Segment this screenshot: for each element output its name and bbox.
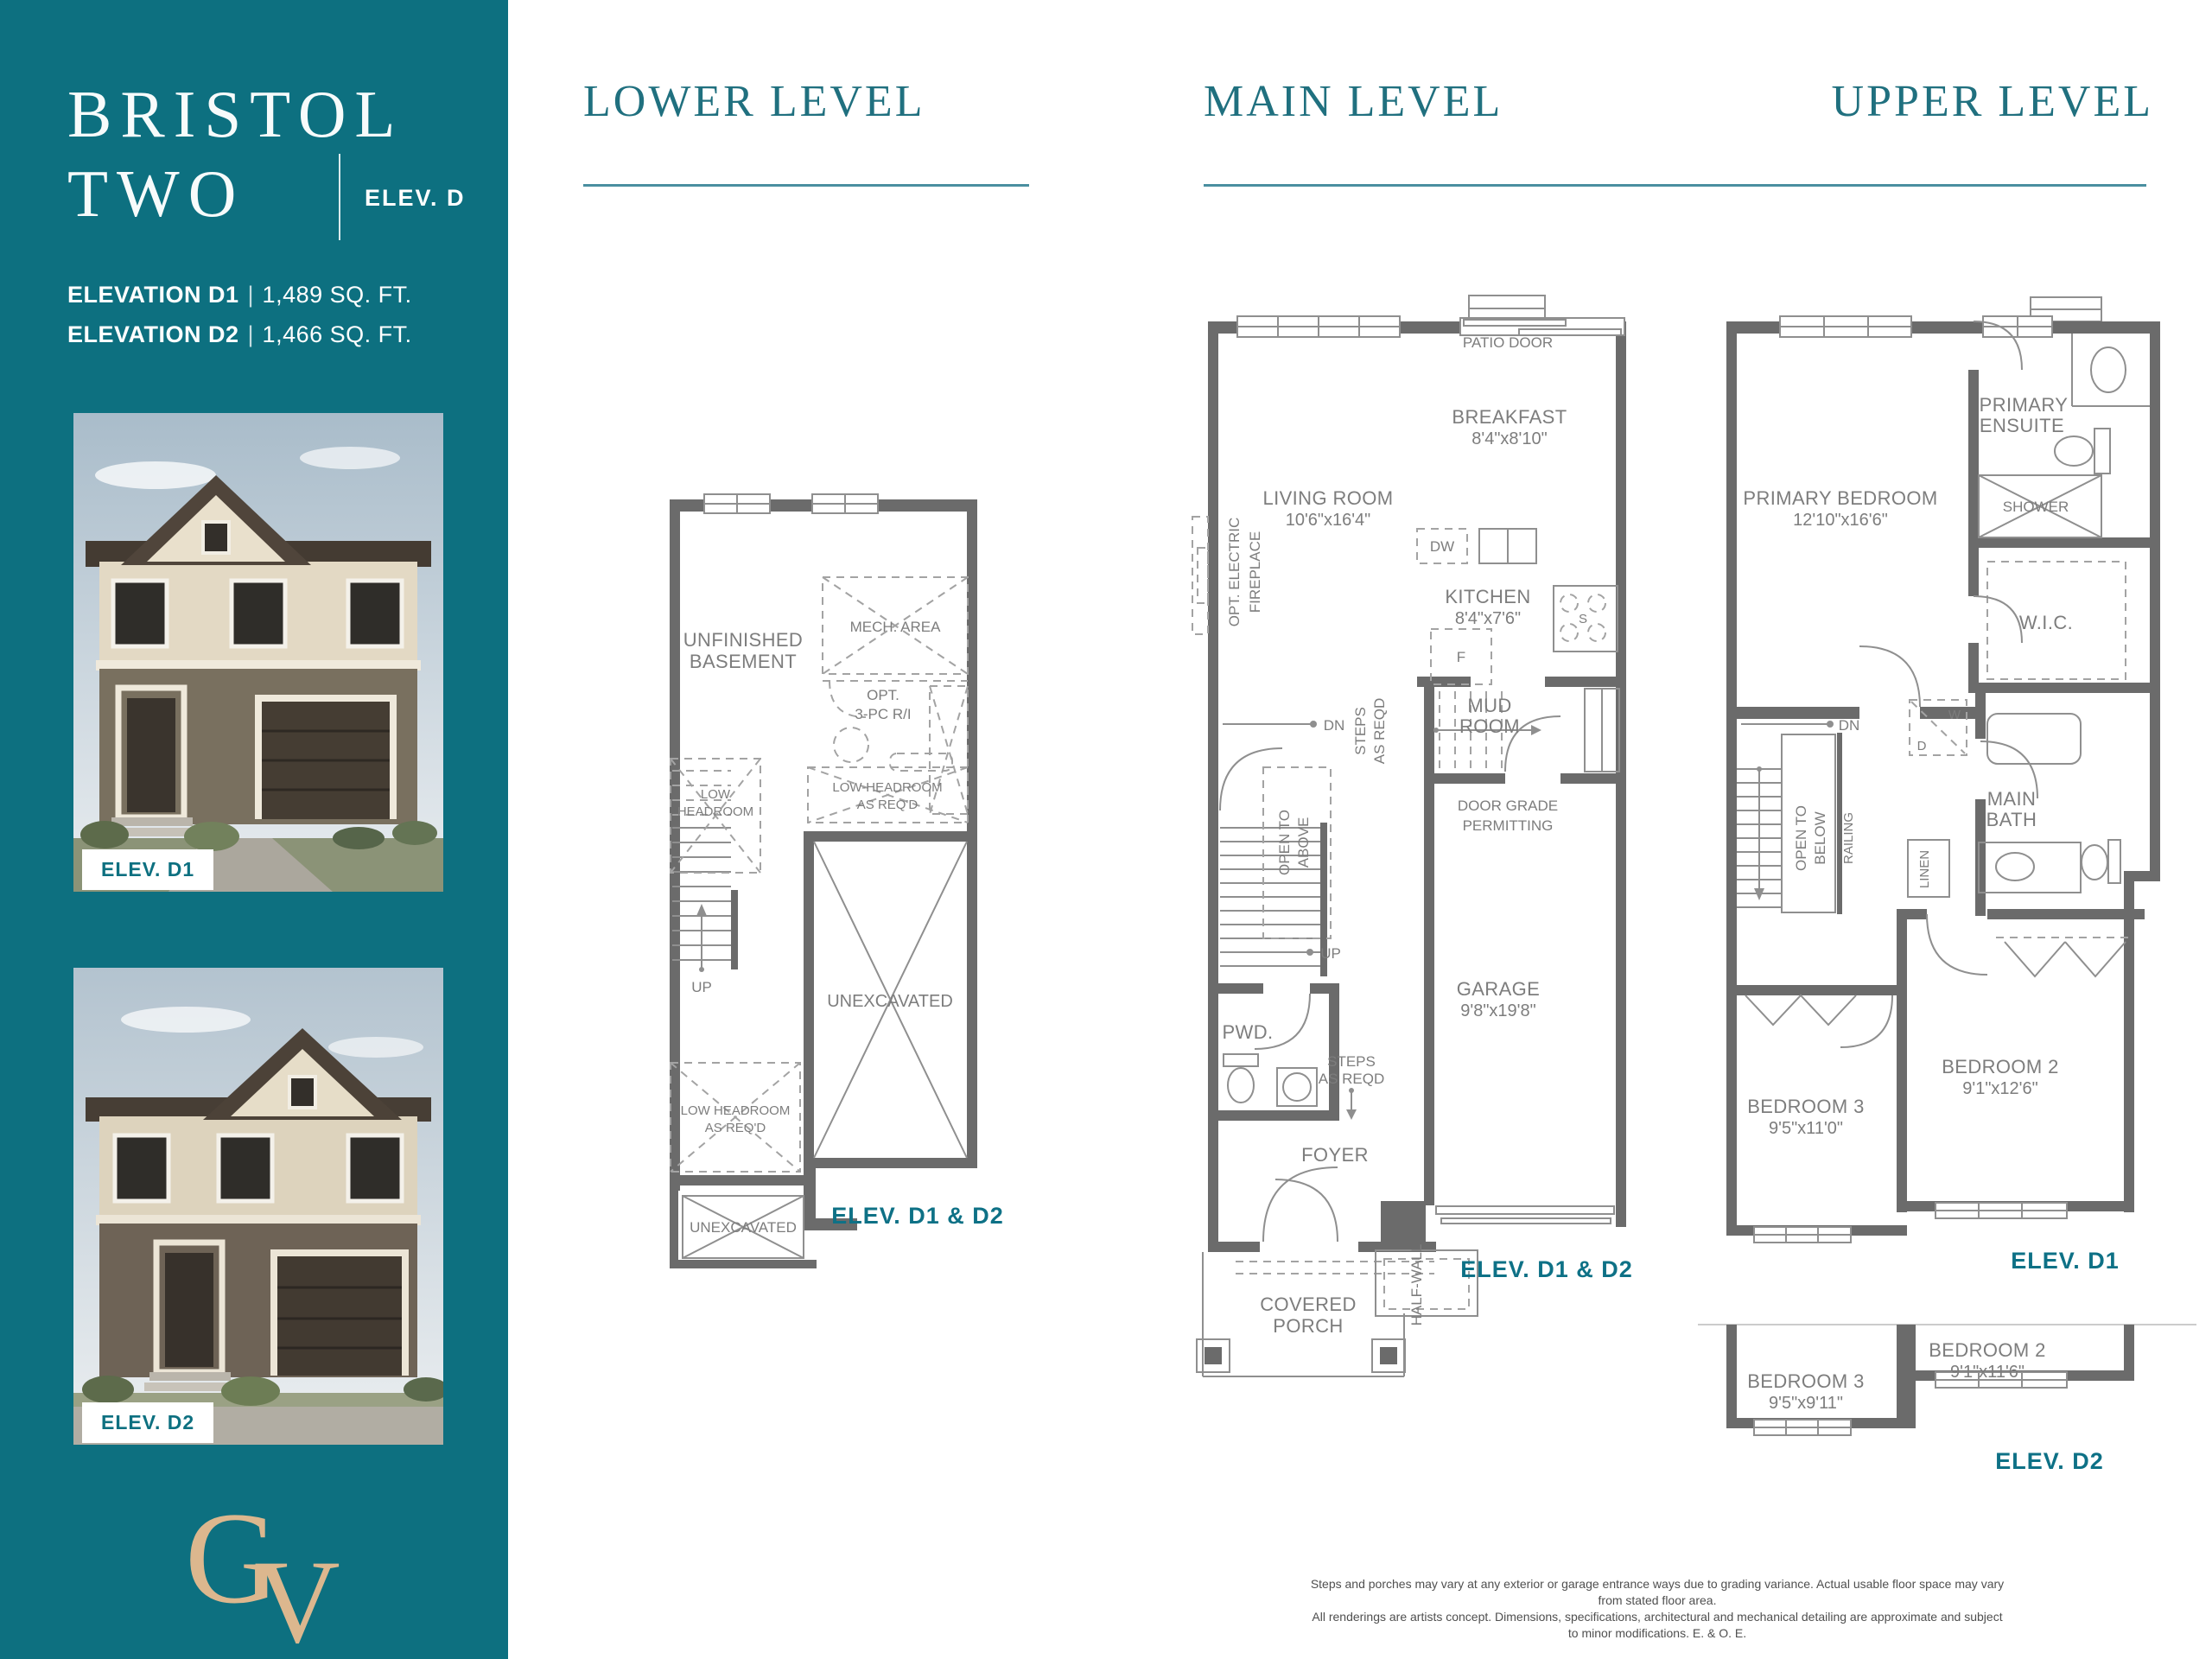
label-opt-electric-fireplace: OPT. ELECTRIC [1226, 518, 1243, 627]
label-bedroom2: BEDROOM 2 [1942, 1056, 2059, 1077]
powder-room [1224, 994, 1317, 1106]
label-low-headroom: LOW [701, 787, 731, 802]
label-dw: DW [1430, 538, 1454, 555]
label-kitchen: KITCHEN [1445, 586, 1530, 607]
svg-text:AS REQD: AS REQD [1319, 1071, 1385, 1087]
label-bedroom3-d2: BEDROOM 3 [1747, 1370, 1865, 1392]
label-steps-as-reqd-vertical: STEPS [1352, 707, 1369, 755]
disclaimer-line-2: All renderings are artists concept. Dime… [1306, 1609, 2008, 1642]
svg-text:AS REQD: AS REQD [1371, 698, 1388, 765]
svg-text:PORCH: PORCH [1273, 1315, 1343, 1337]
upper-level-d2-variant: BEDROOM 3 9'5"x9'11" BEDROOM 2 9'1"x11'6… [1698, 1325, 2196, 1474]
label-half-wall: HALF-WALL [1408, 1244, 1425, 1326]
svg-text:AS REQ'D: AS REQ'D [857, 798, 918, 812]
label-mech-area: MECH. AREA [850, 619, 942, 635]
label-dryer: D [1917, 739, 1927, 753]
svg-text:FIREPLACE: FIREPLACE [1247, 531, 1263, 613]
label-unfinished-basement: UNFINISHED [683, 629, 803, 651]
svg-text:3-PC R/I: 3-PC R/I [855, 706, 911, 722]
label-low-headroom-stair: LOW HEADROOM [681, 1103, 791, 1118]
label-unexcavated-small: UNEXCAVATED [690, 1219, 797, 1236]
main-elev-note: ELEV. D1 & D2 [1460, 1256, 1633, 1282]
label-covered-porch: COVERED [1260, 1294, 1357, 1315]
svg-text:9'5"x11'0": 9'5"x11'0" [1769, 1119, 1843, 1138]
upper-level-plan: PRIMARY BEDROOM 12'10"x16'6" PRIMARY ENS… [1726, 297, 2160, 1274]
main-level-plan: PATIO DOOR BREAKFAST 8'4"x8'10" LIVING R… [1192, 296, 1633, 1376]
label-shower: SHOWER [2003, 499, 2069, 515]
upper-elev-note-d2: ELEV. D2 [1995, 1448, 2104, 1474]
lower-elev-note: ELEV. D1 & D2 [831, 1203, 1004, 1229]
svg-text:ROOM: ROOM [1459, 715, 1520, 737]
label-unexcavated: UNEXCAVATED [827, 992, 953, 1011]
label-door-grade-permitting: DOOR GRADE [1458, 798, 1558, 814]
label-foyer: FOYER [1301, 1144, 1369, 1166]
patio-door-opening [1460, 318, 1624, 335]
label-patio-door: PATIO DOOR [1463, 334, 1553, 351]
label-up: UP [691, 979, 712, 995]
svg-text:ENSUITE: ENSUITE [1980, 415, 2064, 436]
svg-text:BASEMENT: BASEMENT [690, 651, 797, 672]
label-dn-upper: DN [1839, 717, 1860, 734]
label-breakfast: BREAKFAST [1452, 406, 1567, 428]
label-wic: W.I.C. [2019, 612, 2073, 633]
svg-text:10'6"x16'4": 10'6"x16'4" [1286, 511, 1371, 530]
floor-plans-layer: UNFINISHED BASEMENT MECH. AREA OPT. 3-PC… [0, 0, 2212, 1659]
svg-text:PERMITTING: PERMITTING [1463, 817, 1554, 834]
brochure-page: BRISTOL TWO ELEV. D ELEVATION D1|1,489 S… [0, 0, 2212, 1659]
svg-text:9'1"x11'6": 9'1"x11'6" [1950, 1363, 2024, 1382]
label-sink: S [1579, 612, 1587, 626]
svg-text:8'4"x7'6": 8'4"x7'6" [1455, 609, 1521, 628]
label-garage: GARAGE [1457, 978, 1541, 1000]
svg-text:BATH: BATH [1986, 809, 2037, 830]
disclaimer: Steps and porches may vary at any exteri… [1306, 1576, 2008, 1642]
label-fridge: F [1457, 649, 1465, 665]
label-main-bath: MAIN [1987, 788, 2037, 810]
upper-elev-note-d1: ELEV. D1 [2011, 1248, 2120, 1274]
svg-text:8'4"x8'10": 8'4"x8'10" [1471, 429, 1547, 448]
label-railing: RAILING [1841, 812, 1856, 864]
label-pwd: PWD. [1222, 1021, 1273, 1043]
label-washer: W [1948, 708, 1961, 722]
main-stairs [1220, 721, 1331, 966]
label-linen: LINEN [1917, 850, 1932, 888]
label-mud-room: MUD [1467, 695, 1511, 716]
label-opt-3pc: OPT. [867, 687, 899, 703]
label-primary-ensuite: PRIMARY [1980, 394, 2069, 416]
svg-text:ABOVE: ABOVE [1295, 817, 1312, 868]
living-room-window [1237, 316, 1400, 337]
svg-text:9'1"x12'6": 9'1"x12'6" [1962, 1079, 2037, 1098]
label-bedroom2-d2: BEDROOM 2 [1929, 1339, 2046, 1361]
lower-level-plan: UNFINISHED BASEMENT MECH. AREA OPT. 3-PC… [670, 494, 1004, 1268]
label-open-to-above: OPEN TO [1276, 810, 1293, 875]
svg-text:12'10"x16'6": 12'10"x16'6" [1793, 511, 1888, 530]
label-steps-as-reqd: STEPS [1327, 1053, 1376, 1070]
svg-text:9'8"x19'8": 9'8"x19'8" [1460, 1001, 1535, 1020]
svg-text:HEADROOM: HEADROOM [677, 804, 753, 819]
label-up-main: UP [1320, 945, 1341, 962]
label-dn: DN [1324, 717, 1345, 734]
svg-text:AS REQ'D: AS REQ'D [705, 1121, 766, 1135]
garage-door [1436, 1206, 1614, 1224]
label-open-to-below: OPEN TO [1793, 805, 1809, 871]
label-living-room: LIVING ROOM [1262, 487, 1393, 509]
svg-text:9'5"x9'11": 9'5"x9'11" [1769, 1394, 1843, 1413]
label-bedroom3: BEDROOM 3 [1747, 1096, 1865, 1117]
label-low-headroom-as-reqd: LOW-HEADROOM [832, 780, 942, 795]
label-primary-bedroom: PRIMARY BEDROOM [1743, 487, 1937, 509]
svg-text:BELOW: BELOW [1812, 811, 1828, 864]
disclaimer-line-1: Steps and porches may vary at any exteri… [1306, 1576, 2008, 1609]
